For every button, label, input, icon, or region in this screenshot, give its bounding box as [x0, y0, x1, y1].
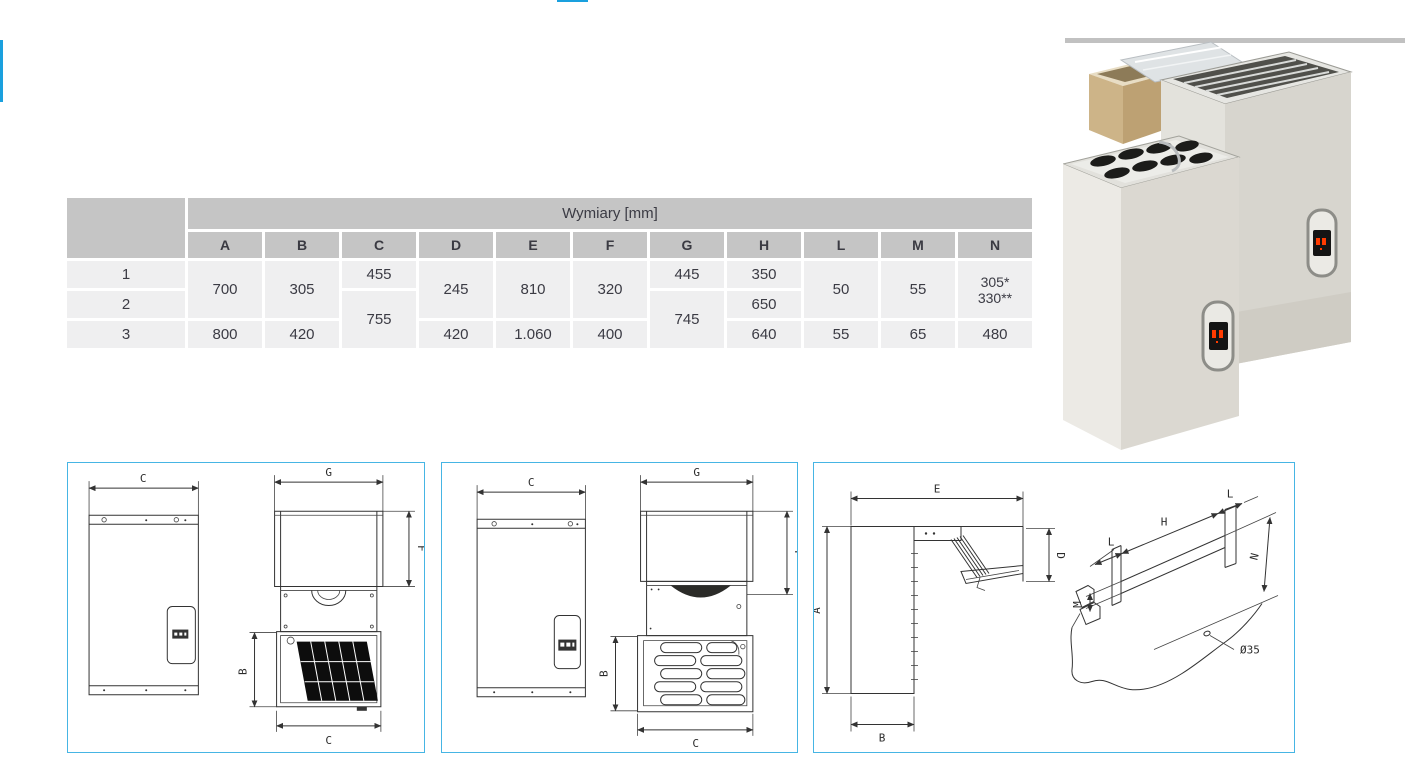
dim-label-b: B [237, 668, 250, 675]
top-view: G F [237, 466, 424, 747]
cell-M-r12: 55 [881, 261, 955, 318]
cell-L-r12: 50 [804, 261, 878, 318]
col-header-A: A [188, 232, 262, 258]
cell-D-r12: 245 [419, 261, 493, 318]
dim-label-a: A [814, 607, 823, 614]
dim-label-d: D [1054, 552, 1067, 559]
cell-N-r12: 305* 330** [958, 261, 1032, 318]
cell-C-r23: 755 [342, 291, 416, 348]
dim-label-g: G [325, 466, 332, 479]
dim-label-c-bottom: C [692, 737, 699, 750]
dimensions-table: Wymiary [mm] A B C D E F G H L M N 1 700… [64, 195, 1035, 351]
table-title: Wymiary [mm] [188, 198, 1032, 229]
drawing-box-front-slots: C G [441, 462, 798, 753]
col-header-H: H [727, 232, 801, 258]
dim-label-n: N [1247, 552, 1261, 562]
drawing-box-front-condenser: C G [67, 462, 425, 753]
right-unit-temperature-display [1308, 210, 1336, 276]
dim-label-l-left: L [1108, 536, 1115, 549]
photo-top-divider [1065, 38, 1405, 43]
cell-H-r2: 650 [727, 291, 801, 318]
dim-label-c-top: C [140, 472, 147, 485]
col-header-D: D [419, 232, 493, 258]
col-header-N: N [958, 232, 1032, 258]
datasheet-page: Wymiary [mm] A B C D E F G H L M N 1 700… [0, 0, 1405, 760]
mounting-hole [1203, 630, 1211, 636]
cell-D-r3: 420 [419, 321, 493, 348]
cell-A-r12: 700 [188, 261, 262, 318]
col-header-B: B [265, 232, 339, 258]
left-unit [1063, 136, 1239, 450]
table-row-3: 3 800 420 420 1.060 400 640 55 65 480 [67, 321, 1032, 348]
product-photo [1063, 14, 1405, 450]
cell-C-r1: 455 [342, 261, 416, 288]
dim-label-f: F [415, 545, 424, 552]
col-header-G: G [650, 232, 724, 258]
cell-N-r3: 480 [958, 321, 1032, 348]
top-view: G F [597, 466, 797, 750]
col-header-E: E [496, 232, 570, 258]
dim-label-b: B [879, 732, 886, 745]
hole-diameter-label: Ø35 [1240, 644, 1260, 657]
front-view: C [477, 476, 585, 697]
dim-label-l-right: L [1227, 488, 1234, 501]
cell-F-r12: 320 [573, 261, 647, 318]
cell-E-r12: 810 [496, 261, 570, 318]
cell-A-r3: 800 [188, 321, 262, 348]
cell-G-r1: 445 [650, 261, 724, 288]
row-label-2: 2 [67, 291, 185, 318]
cell-E-r3: 1.060 [496, 321, 570, 348]
cell-M-r3: 65 [881, 321, 955, 348]
table-row-1: 1 700 305 455 245 810 320 445 350 50 55 … [67, 261, 1032, 288]
drawing-box-side-and-cutout: E A [813, 462, 1295, 753]
row-label-1: 1 [67, 261, 185, 288]
table-column-header-row: A B C D E F G H L M N [67, 232, 1032, 258]
cell-B-r12: 305 [265, 261, 339, 318]
cell-H-r3: 640 [727, 321, 801, 348]
top-accent-mark [557, 0, 588, 2]
col-header-M: M [881, 232, 955, 258]
table-title-row: Wymiary [mm] [67, 198, 1032, 229]
cell-F-r3: 400 [573, 321, 647, 348]
cell-G-r23: 745 [650, 291, 724, 348]
dim-label-b: B [597, 670, 610, 677]
wall-cutout-sketch: L H L M N [1071, 488, 1278, 690]
left-unit-temperature-display [1203, 302, 1233, 370]
table-corner-cell [67, 198, 185, 258]
cell-N-r12-line1: 305* [958, 274, 1032, 290]
cell-L-r3: 55 [804, 321, 878, 348]
condenser-grille [297, 642, 378, 701]
col-header-F: F [573, 232, 647, 258]
col-header-L: L [804, 232, 878, 258]
dim-label-g: G [693, 466, 700, 479]
row-label-3: 3 [67, 321, 185, 348]
cell-H-r1: 350 [727, 261, 801, 288]
dim-label-e: E [934, 483, 941, 496]
slot-grille [655, 643, 745, 705]
dim-label-c-top: C [528, 476, 535, 489]
cell-N-r12-line2: 330** [958, 290, 1032, 306]
front-view: C [89, 472, 198, 695]
dim-label-c-bottom: C [325, 734, 332, 747]
dim-label-h: H [1161, 516, 1168, 529]
evaporator-coil [951, 536, 989, 591]
cell-B-r3: 420 [265, 321, 339, 348]
left-accent-bar [0, 40, 3, 102]
side-view: E A [814, 483, 1067, 745]
col-header-C: C [342, 232, 416, 258]
dim-label-f: F [792, 550, 797, 557]
